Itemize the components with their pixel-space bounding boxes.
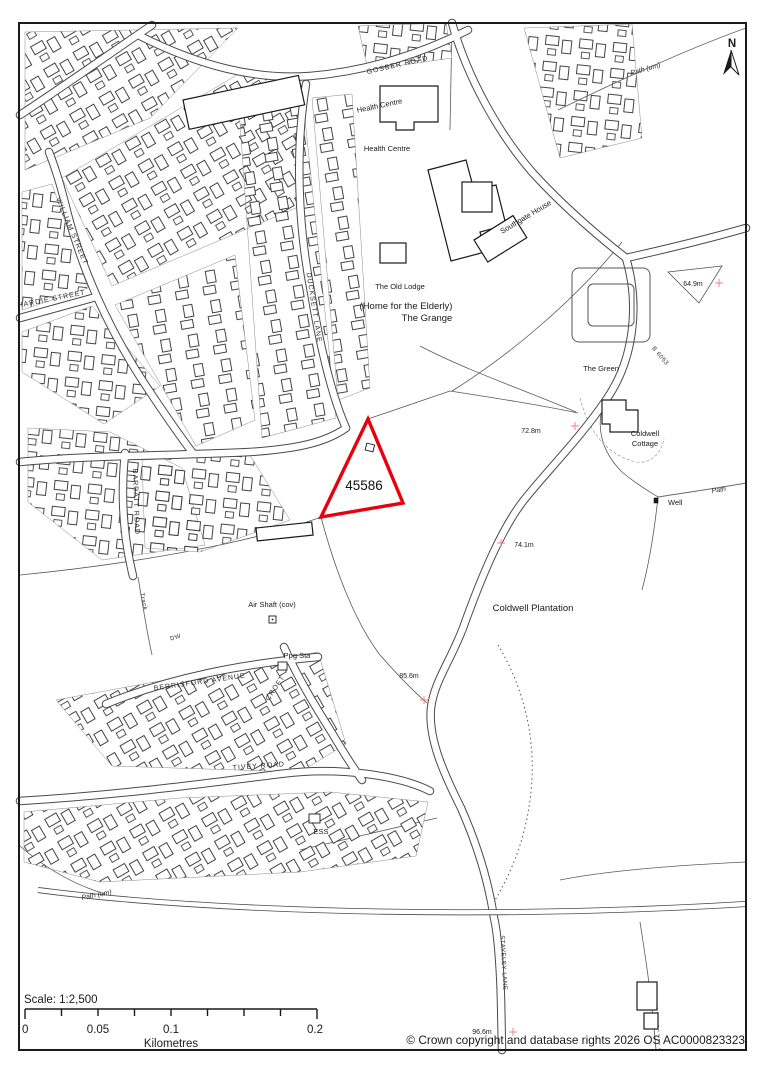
elevation-64-9: 64.9m [683, 281, 703, 288]
parcel-id-label: 45586 [345, 478, 383, 493]
place-label-old-lodge: The Old Lodge [375, 282, 425, 291]
old-lodge-building [380, 243, 406, 263]
place-label-ppg-sta: Ppg Sta [284, 651, 312, 660]
os-map-canvas: 45586 GOSBER ROAD WILLIAM STREET HARDIE … [0, 0, 764, 1080]
copyright-notice: © Crown copyright and database rights 20… [406, 1033, 745, 1047]
place-label-the-green: The Green [583, 364, 619, 373]
scale-text: Scale: 1:2,500 [24, 994, 98, 1006]
parcel-inner-building [365, 443, 374, 452]
place-label-the-grange: The Grange [402, 313, 453, 324]
place-label-ess: ESS [313, 827, 328, 836]
place-label-coldwell-cottage-1: Coldwell [631, 429, 660, 438]
scale-unit-label: Kilometres [144, 1038, 199, 1050]
ess-building [309, 814, 320, 823]
place-label-well: Well [668, 498, 683, 507]
place-label-health-centre-2: Health Centre [364, 144, 410, 153]
air-shaft-dot [272, 619, 274, 621]
scale-tick-005: 0.05 [87, 1024, 109, 1036]
place-label-coldwell-cottage-2: Cottage [632, 439, 658, 448]
scale-tick-0: 0 [22, 1024, 28, 1036]
building-br-1 [637, 982, 657, 1010]
elevation-72-8: 72.8m [521, 428, 541, 435]
place-label-air-shaft: Air Shaft (cov) [248, 600, 296, 609]
place-label-home-for-elderly: (Home for the Elderly) [360, 301, 453, 312]
place-label-coldwell-plantation: Coldwell Plantation [493, 603, 574, 614]
ppg-sta-building [278, 662, 287, 670]
well-marker [654, 498, 658, 503]
elevation-74-1: 74.1m [514, 542, 534, 549]
scale-tick-01: 0.1 [163, 1024, 179, 1036]
north-arrow-label: N [728, 38, 736, 50]
building-br-2 [644, 1013, 658, 1029]
elevation-85-6: 85.6m [399, 673, 419, 680]
house-building [462, 182, 492, 212]
scale-tick-02: 0.2 [307, 1024, 323, 1036]
